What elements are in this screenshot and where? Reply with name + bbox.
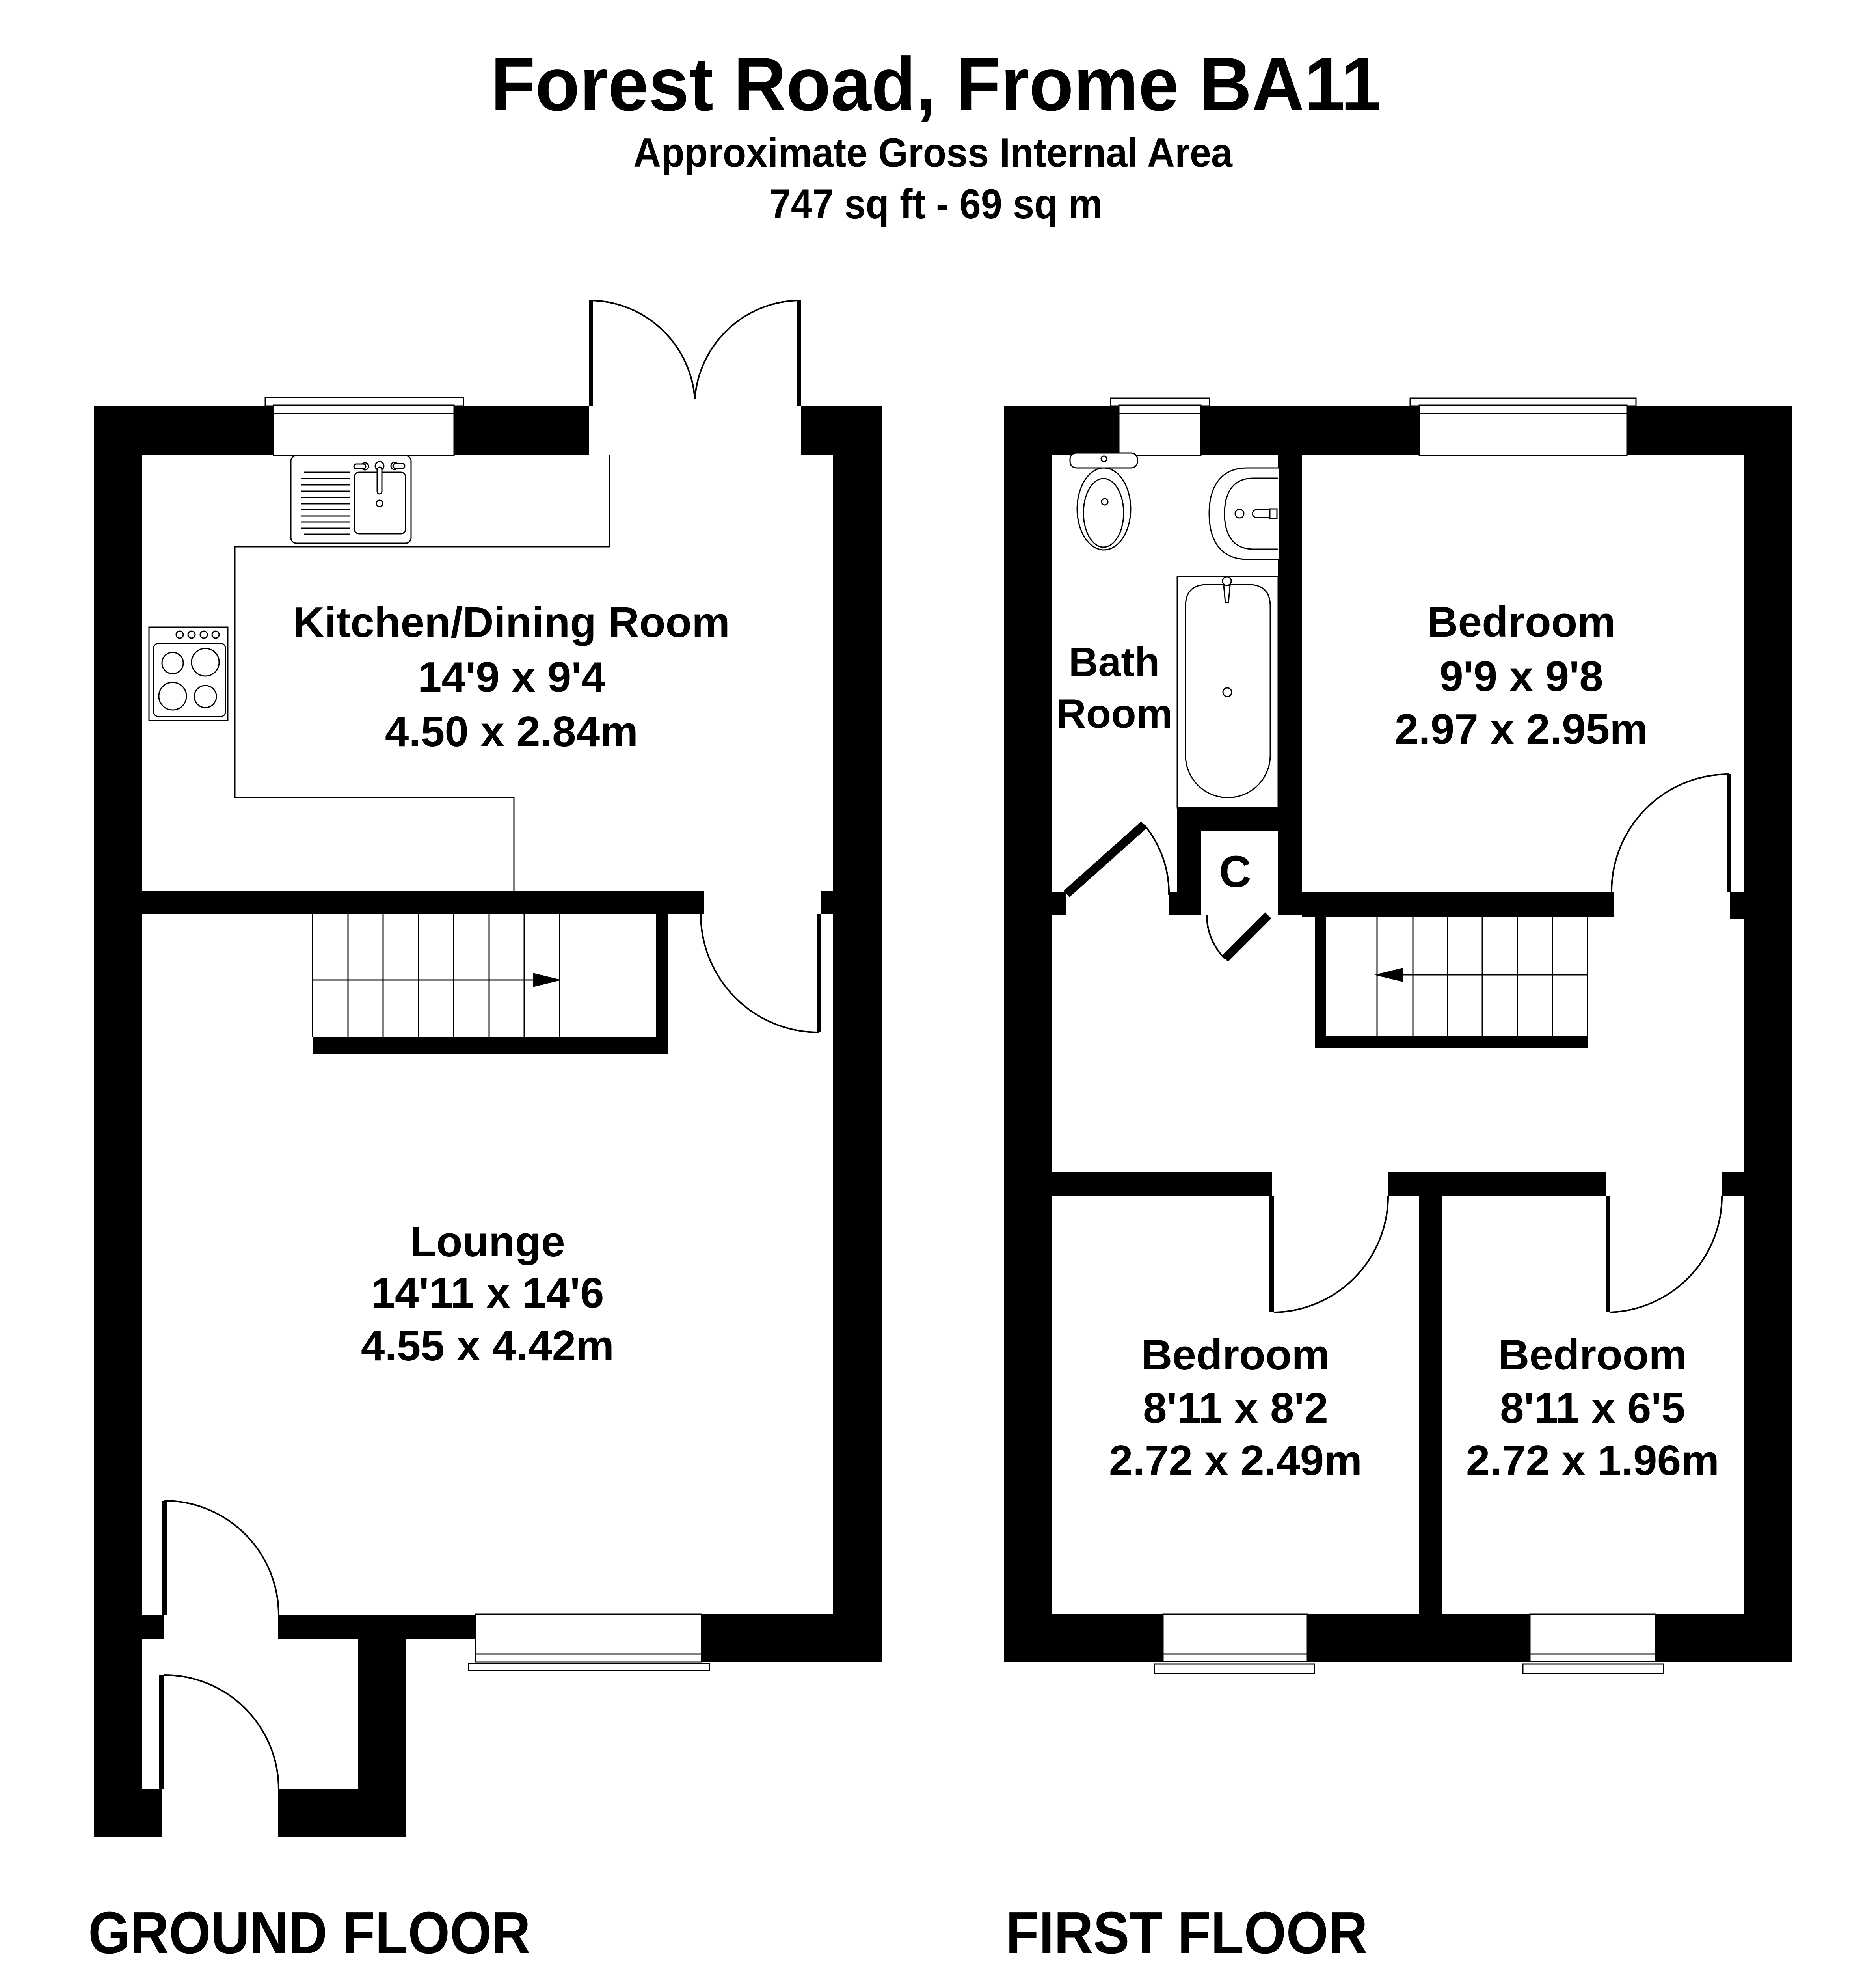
svg-text:4.55 x 4.42m: 4.55 x 4.42m (361, 1322, 614, 1370)
svg-text:Bedroom: Bedroom (1498, 1331, 1687, 1379)
svg-text:4.50 x 2.84m: 4.50 x 2.84m (385, 708, 638, 756)
svg-text:C: C (1219, 847, 1251, 896)
svg-text:Bedroom: Bedroom (1141, 1331, 1330, 1379)
svg-text:Approximate Gross Internal Are: Approximate Gross Internal Area (633, 130, 1233, 176)
svg-text:GROUND FLOOR: GROUND FLOOR (88, 1899, 530, 1966)
svg-text:8'11 x 6'5: 8'11 x 6'5 (1500, 1384, 1685, 1432)
svg-text:Bedroom: Bedroom (1427, 598, 1615, 646)
svg-text:Room: Room (1057, 691, 1173, 737)
svg-text:747 sq ft - 69 sq m: 747 sq ft - 69 sq m (770, 180, 1103, 227)
svg-text:2.97 x 2.95m: 2.97 x 2.95m (1395, 705, 1648, 753)
svg-text:FIRST FLOOR: FIRST FLOOR (1006, 1899, 1368, 1966)
svg-text:14'11 x 14'6: 14'11 x 14'6 (371, 1269, 604, 1317)
svg-text:Bath: Bath (1068, 639, 1159, 685)
svg-text:9'9 x 9'8: 9'9 x 9'8 (1439, 652, 1603, 700)
svg-text:Lounge: Lounge (410, 1218, 565, 1266)
svg-text:14'9 x 9'4: 14'9 x 9'4 (418, 653, 606, 701)
svg-text:Forest Road, Frome BA11: Forest Road, Frome BA11 (491, 41, 1381, 127)
svg-text:2.72 x 2.49m: 2.72 x 2.49m (1109, 1436, 1362, 1485)
svg-text:2.72 x 1.96m: 2.72 x 1.96m (1466, 1436, 1719, 1485)
svg-text:Kitchen/Dining Room: Kitchen/Dining Room (293, 598, 730, 646)
svg-text:8'11 x 8'2: 8'11 x 8'2 (1143, 1384, 1328, 1432)
